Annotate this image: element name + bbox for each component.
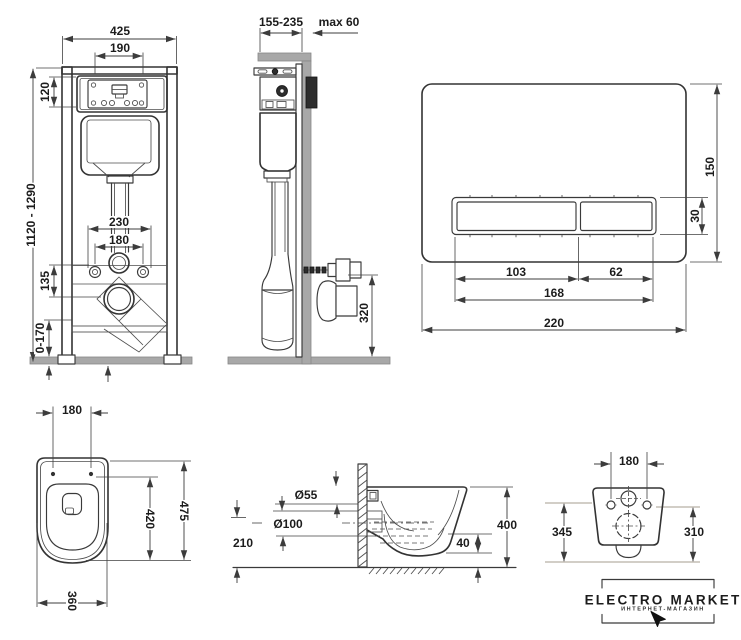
dim-panel-height: 120: [39, 81, 51, 103]
dim-frame-width: 425: [109, 25, 131, 37]
dim-plate-width: 220: [543, 317, 565, 329]
bowl-back-view: [545, 452, 700, 562]
cursor-icon: [651, 612, 665, 627]
dim-depth-range: 155-235: [258, 16, 304, 28]
dim-outlet-height-320: 320: [358, 302, 370, 324]
dim-bowl-bolt-spacing: 180: [61, 404, 83, 416]
dim-buttons-width: 168: [543, 287, 565, 299]
dim-bowl-total-height: 400: [496, 519, 518, 531]
dim-back-height-left: 345: [551, 526, 573, 538]
dim-spacing-230: 230: [108, 216, 130, 228]
dim-bowl-length: 475: [178, 500, 190, 522]
bowl-top-view: [36, 407, 191, 608]
dim-back-bolt-spacing: 180: [618, 455, 640, 467]
dim-button-large: 103: [505, 266, 527, 278]
technical-drawing-sheet: 425 190 1120 - 1290 120 230 180 135 0-17…: [0, 0, 741, 640]
dim-wall-max: max 60: [318, 16, 361, 28]
dim-outlet-diameter: Ø100: [272, 518, 303, 530]
dim-frame-height-range: 1120 - 1290: [25, 182, 37, 247]
dim-rim-height: 40: [455, 537, 470, 549]
dim-back-height-right: 310: [683, 526, 705, 538]
dim-bowl-width: 360: [66, 590, 78, 612]
dim-bolt-to-front: 420: [144, 508, 156, 530]
dim-button-height: 30: [689, 208, 701, 223]
dim-outlet-height-210: 210: [232, 537, 254, 549]
dim-adjust-range: 0-170: [34, 322, 46, 355]
dim-plate-height: 150: [704, 156, 716, 178]
flush-plate-view: [422, 84, 722, 332]
brand-logo-title: ELECTRO MARKET: [584, 593, 741, 607]
dim-frame-inner-width: 190: [109, 42, 131, 54]
brand-logo-subtitle: ИНТЕРНЕТ-МАГАЗИН: [620, 607, 706, 613]
dim-offset-135: 135: [39, 270, 51, 292]
frame-front-view: [30, 36, 192, 382]
dim-spacing-180: 180: [108, 234, 130, 246]
dim-inlet-diameter: Ø55: [294, 489, 319, 501]
dim-button-small: 62: [608, 266, 623, 278]
